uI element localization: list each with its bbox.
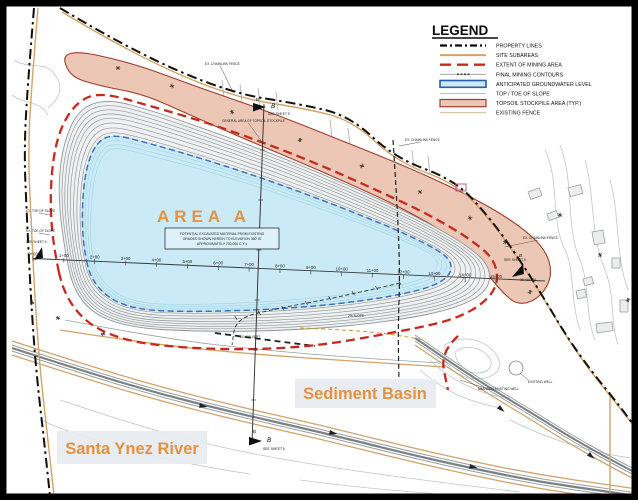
section-letter: B [253, 429, 256, 434]
river-label-group: Santa Ynez River [57, 431, 207, 464]
legend-item-label: FINAL MINING CONTOURS [496, 72, 564, 78]
annotation-slope-top: EX. TOP OF SLOPE [26, 209, 55, 213]
river-label: Santa Ynez River [65, 440, 199, 458]
annotation-existing-well: EXISTING WELL [528, 380, 553, 384]
building-footprint [612, 258, 620, 268]
site-plan-sheet: 0+001+002+003+004+005+006+007+008+009+00… [0, 0, 638, 500]
annotation-topsoil-general: GENERAL AREA OF TOPSOIL STOCKPILE [222, 119, 285, 123]
legend-item-label: EXTENT OF MINING AREA [496, 63, 562, 69]
annotation-fence: EX. CHAINLINK FENCE [523, 236, 558, 240]
station-end-label: 15+00+38 [520, 278, 536, 282]
station-label: 4+00 [152, 257, 162, 262]
excavation-note-box: POTENTIAL EXCAVATED MATERIAL FROM EXISTI… [165, 228, 279, 249]
station-label: 1+00 [59, 253, 69, 258]
legend-swatch-groundwater [440, 81, 486, 88]
station-label: 6+00 [213, 260, 223, 265]
building-footprint [596, 322, 613, 333]
legend-item-groundwater: ANTICIPATED GROUNDWATER LEVEL [440, 81, 592, 88]
legend-swatch-topsoil [440, 100, 486, 107]
legend-item-label: ANTICIPATED GROUNDWATER LEVEL [496, 82, 592, 88]
legend-title: LEGEND [432, 23, 489, 38]
see-sheet-label: SEE SHEET 5 [504, 258, 526, 262]
station-label: 15+00 [490, 274, 503, 279]
annotation-slope-pct: 2% SLOPE [348, 314, 364, 318]
note-line: POTENTIAL EXCAVATED MATERIAL FROM EXISTI… [180, 232, 265, 236]
sediment-basin-label-group: Sediment Basin [295, 379, 436, 408]
legend-item-label: EXISTING FENCE [496, 111, 541, 117]
station-label: 12+00 [397, 269, 410, 274]
see-sheet-label: SEE SHEET 5 [263, 447, 285, 451]
see-sheet-label: SEE SHEET 5 [268, 112, 290, 116]
site-plan-map: 0+001+002+003+004+005+006+007+008+009+00… [0, 0, 638, 500]
station-label: 7+00 [244, 262, 254, 267]
see-sheet-label: SEE SHEET 5 [26, 240, 47, 244]
legend-item-label: PROPERTY LINES [496, 44, 542, 50]
sediment-basin-label: Sediment Basin [303, 385, 427, 403]
note-line: APPROXIMATELY 700,000 C.Y.± [197, 242, 247, 246]
legend-item-topsoil: TOPSOIL STOCKPILE AREA (TYP.) [440, 100, 581, 108]
building-footprint [576, 289, 586, 299]
building-footprint [592, 230, 605, 245]
station-label: 9+00 [306, 265, 316, 270]
annotation-fence: EX. CHAINLINK FENCE [205, 62, 240, 66]
note-line: GRADES SHOWN HEREIN TO ELEVATION 360' IS [183, 237, 262, 241]
station-label: 2+00 [90, 254, 100, 259]
station-label: 3+00 [121, 256, 131, 261]
annotation-fence: EX. CHAINLINK FENCE [405, 138, 440, 142]
station-label: 8+00 [275, 263, 285, 268]
section-letter: B [267, 437, 272, 444]
section-letter: B [271, 103, 276, 110]
station-label: 10+00 [336, 266, 349, 271]
legend-item-label: SITE SUBAREAS [496, 53, 539, 59]
legend-item-label: TOPSOIL STOCKPILE AREA (TYP.) [496, 101, 581, 107]
section-letter: B [519, 253, 522, 258]
station-label: 11+00 [367, 268, 379, 273]
section-letter: B [256, 97, 259, 102]
station-label: 5+00 [183, 259, 193, 264]
legend-item-label: TOP / TOE OF SLOPE [496, 92, 550, 98]
annotation-culvert: 24" CULVERT [240, 335, 260, 339]
area-a-label: AREA A [157, 207, 251, 226]
annotation-slope-toe: EX. TOE OF SLOPE [26, 229, 55, 233]
station-label: 13+00 [428, 271, 441, 276]
station-label: 14+00 [459, 272, 472, 277]
